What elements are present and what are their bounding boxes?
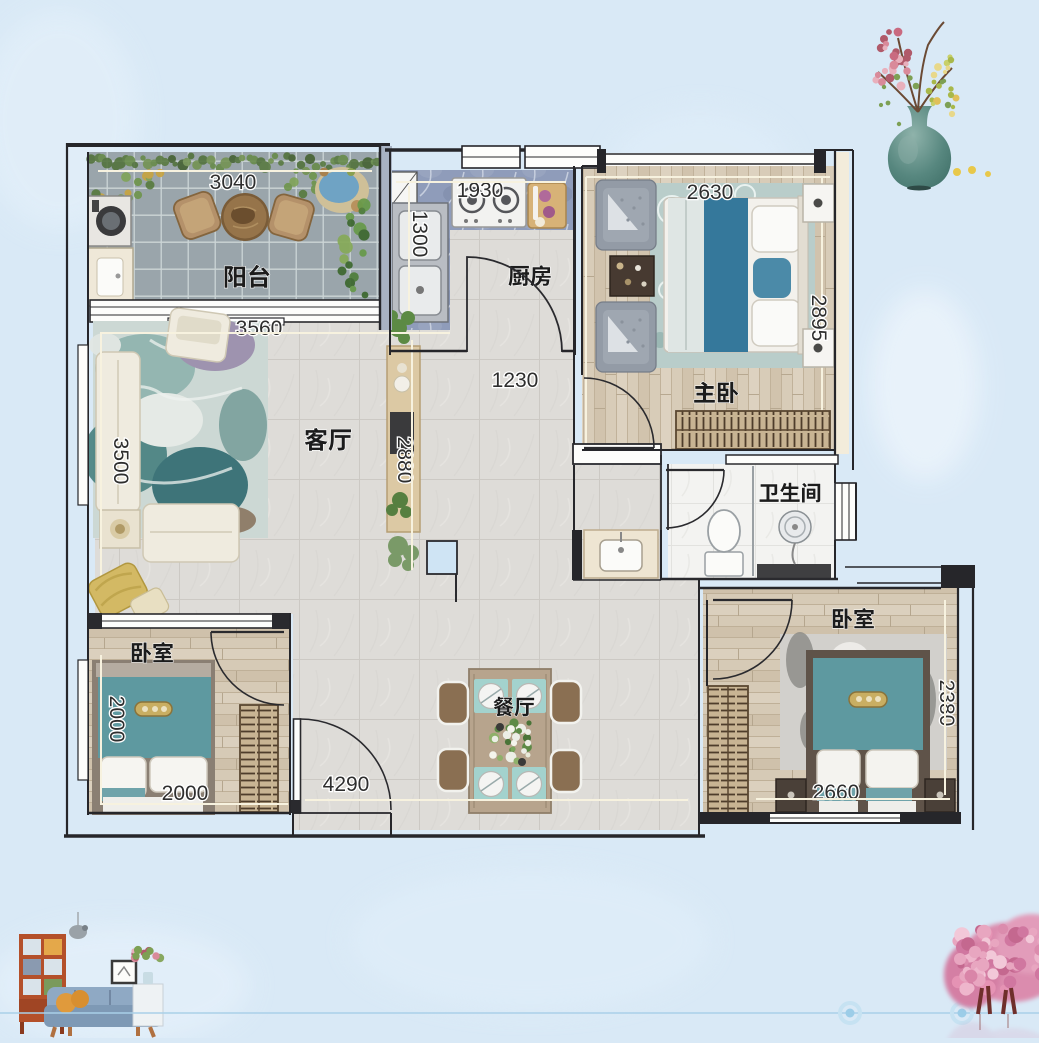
- svg-text:2000: 2000: [162, 782, 209, 805]
- svg-text:4290: 4290: [323, 773, 370, 796]
- svg-text:1230: 1230: [492, 369, 539, 392]
- svg-text:3500: 3500: [109, 438, 132, 485]
- svg-text:2000: 2000: [105, 696, 128, 743]
- svg-text:2895: 2895: [807, 295, 830, 342]
- svg-text:1300: 1300: [408, 211, 431, 258]
- svg-text:3560: 3560: [236, 317, 283, 340]
- svg-text:2660: 2660: [813, 781, 860, 804]
- svg-text:3040: 3040: [210, 171, 257, 194]
- svg-text:2630: 2630: [687, 181, 734, 204]
- svg-text:2380: 2380: [935, 680, 958, 727]
